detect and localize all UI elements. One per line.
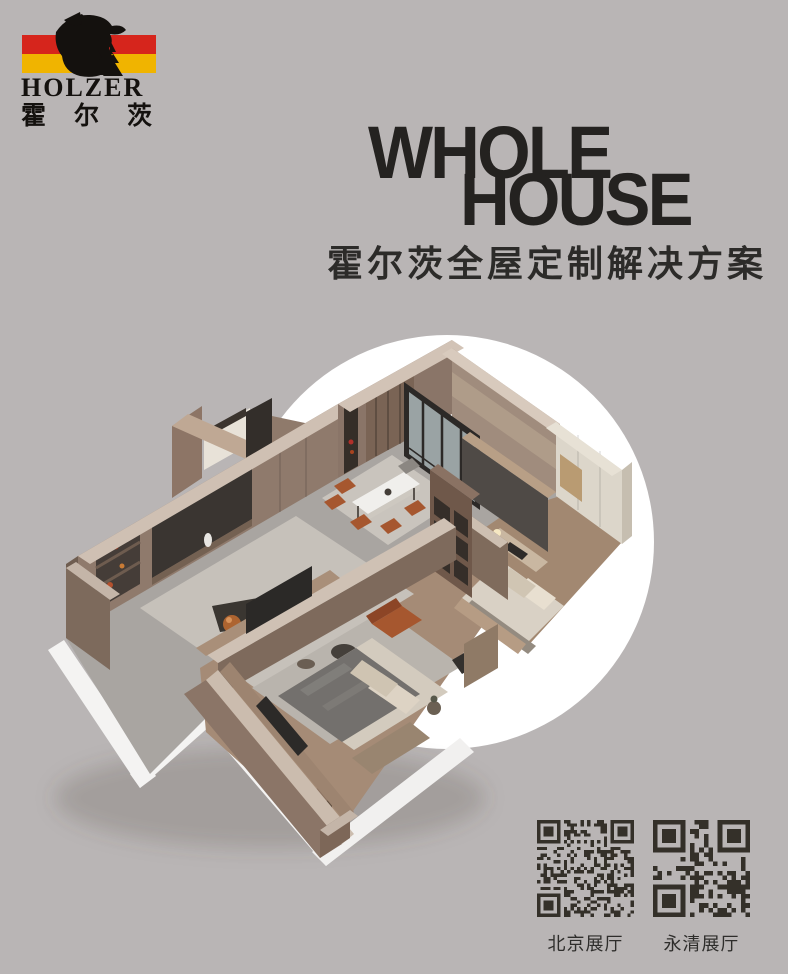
feature-wall: [338, 340, 464, 478]
wine-display-niche: [344, 396, 358, 474]
living-tv: [246, 566, 312, 634]
subtitle: 霍尔茨全屋定制解决方案: [327, 235, 767, 287]
brand-name-chinese: 霍尔茨: [21, 96, 180, 132]
living-furniture: [212, 598, 422, 669]
dining-table: [352, 472, 420, 514]
pillows: [368, 674, 420, 714]
dining-rug: [322, 455, 458, 545]
master-bed: [278, 638, 448, 750]
poster: HOLZER 霍尔茨 WHOLE HOUSE 霍尔茨全屋定制解决方案: [0, 0, 788, 974]
desk-lamp: [493, 529, 501, 537]
tv-niche: [152, 464, 252, 578]
armchair: [372, 606, 422, 638]
qr-yongqing-showroom: 永清展厅: [653, 820, 750, 956]
qr-label-yongqing: 永清展厅: [653, 930, 750, 956]
tv-divider-wall: [196, 518, 456, 696]
wardrobe-shelf-niche: [560, 454, 582, 502]
bedroom-tv: [256, 696, 308, 756]
coffee-table-dark: [212, 598, 258, 632]
floor-shadow: [55, 748, 485, 848]
corridor-wall: [462, 432, 556, 552]
lumberjack-logo-icon: [46, 10, 132, 82]
qr-code-icon: [653, 820, 750, 917]
balcony-wing-walls: [172, 398, 338, 498]
kitchen-block: [404, 348, 560, 510]
living-rug: [140, 516, 414, 690]
guest-bed: [462, 560, 564, 644]
brand-logo: HOLZER 霍尔茨: [0, 0, 220, 140]
bed-bench: [352, 722, 430, 774]
duvet: [278, 648, 420, 742]
bedroom-rug: [252, 610, 462, 744]
open-shelves: [96, 520, 140, 610]
qr-code-icon: [537, 820, 634, 917]
floors: [66, 416, 622, 844]
tv-console: [196, 570, 340, 656]
dining-chairs: [324, 478, 426, 534]
cream-wardrobe: [556, 422, 622, 544]
dark-door: [246, 398, 272, 466]
qr-beijing-showroom: 北京展厅: [537, 820, 634, 956]
decor-sphere: [223, 615, 241, 633]
bookshelf: [430, 470, 472, 598]
floor-slab: [48, 640, 474, 866]
master-bedroom: [278, 624, 498, 824]
qr-label-beijing: 北京展厅: [537, 930, 634, 956]
white-circle-backdrop: [240, 335, 654, 749]
study-bedroom: [430, 422, 632, 654]
bedroom-front-halfwall: [184, 662, 358, 858]
living-cabinet-wall: [66, 404, 350, 670]
glass-panes: [409, 392, 475, 502]
title-line-2: HOUSE: [460, 163, 691, 237]
dining-set: [324, 458, 426, 534]
nightstand: [296, 788, 332, 810]
desk: [488, 528, 548, 572]
laptop: [504, 542, 528, 560]
glass-door-frame: [404, 382, 480, 510]
